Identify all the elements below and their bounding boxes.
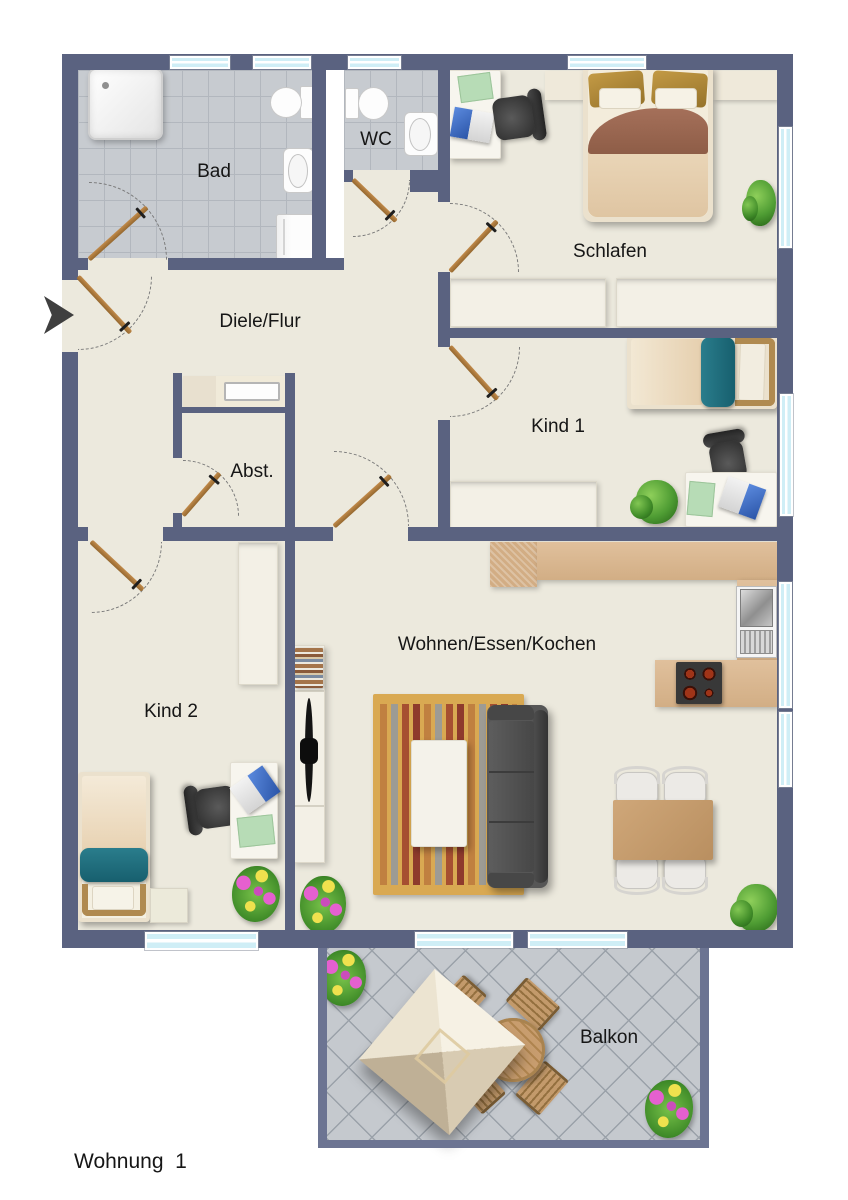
window-bad-2 [253,56,311,69]
balcony-door-right [528,932,627,948]
sofa-cushion-gap [489,821,534,823]
room-label-wc: WC [360,129,392,151]
bed-blanket-teal [80,848,148,882]
bed-pillow [92,886,134,910]
room-label-bad: Bad [197,161,231,183]
book-stack [295,648,323,688]
plan-title: Wohnung 1 [74,1150,187,1174]
kind1-bed [627,335,777,409]
shower [88,68,163,140]
kitchen-sink [736,586,777,658]
room-label-wohnen: Wohnen/Essen/Kochen [398,634,596,656]
window-kind2 [145,932,258,950]
toilet-bowl [270,87,302,118]
window-schlafen-top [568,56,646,69]
sofa-seat [489,721,534,872]
wall-wc-right [438,70,450,202]
wall-abst-left [173,373,182,458]
wc-toilet-bowl [358,87,389,120]
wc-sink-basin [409,118,431,151]
room-label-balkon: Balkon [580,1027,638,1049]
wall-balcony-right [700,948,709,1148]
kind2-side-table [150,888,188,923]
bed-mattress [631,339,703,405]
kind1-paper [687,481,716,517]
window-wc [348,56,401,69]
nightstand-right [713,71,777,100]
dining-table [613,800,713,860]
sink-basin [740,589,773,627]
wc-sink [404,112,438,156]
schlafen-wardrobe-right [616,278,777,327]
wall-abst-left-stub [173,513,182,527]
sofa-armrest [488,705,534,720]
wc-toilet [345,87,389,120]
wall-mid-c [408,527,793,541]
media-unit-divider [293,805,324,807]
coffee-table [411,740,467,847]
duct-shaft [326,70,344,258]
window-kind1 [780,394,793,516]
wall-balcony-left [318,948,327,1148]
room-label-schlafen: Schlafen [573,241,647,263]
wall-kind1-left [438,420,450,527]
wall-balcony-bottom [318,1140,709,1148]
dining-chair [664,855,706,889]
kind2-wardrobe [238,542,278,685]
schlafen-wardrobe-left [450,278,606,327]
wall-mid-b [163,527,333,541]
washing-machine-panel [283,219,285,255]
floor-plan-wohnung-1: Bad WC Schlafen Diele/Flur Abst. Kind 1 … [0,0,848,1200]
kind1-wardrobe [450,481,597,529]
room-label-abst: Abst. [230,461,273,483]
wall-abst-right [285,373,295,527]
kind2-bed [78,772,150,922]
wall-kind2-wohnen [285,541,295,932]
room-label-diele: Diele/Flur [219,311,300,333]
wall-schlafen-kind1 [444,328,793,338]
parasol-center [414,1028,470,1084]
bed-lower [588,150,708,217]
window-wohnen-2 [779,712,792,787]
window-wohnen-1 [779,582,792,708]
kitchen-counter-top [537,542,777,580]
sink-basin [288,154,308,188]
bed-headboard [735,338,775,406]
wc-toilet-tank [345,88,359,119]
wall-left-upper [62,54,78,280]
abst-shelf-tray [224,382,280,401]
media-unit-divider [293,690,324,692]
balcony-door-left [415,932,513,948]
kitchen-counter-block [490,542,537,587]
kitchen-stove [676,662,722,704]
sofa-armrest [488,873,534,888]
kind2-paper [237,814,276,848]
room-label-kind2: Kind 2 [144,701,198,723]
sofa [487,705,548,888]
schlafen-desk-paper [457,72,493,103]
sofa-backrest [533,710,548,883]
tv-stand [300,738,318,764]
bed-blanket-teal [701,337,735,407]
nightstand-left [545,71,583,100]
wall-bad-right [312,70,326,258]
window-bad-1 [170,56,230,69]
sofa-cushion-gap [489,771,534,773]
window-schlafen-right [779,127,792,248]
toilet [270,86,314,119]
room-label-kind1: Kind 1 [531,416,585,438]
pillow [599,88,641,109]
sink-drainer [740,630,773,654]
double-bed [583,66,713,222]
wall-bad-bottom-stub [78,258,88,270]
dining-chair [616,855,658,889]
bed-mattress [82,776,146,852]
wall-abst-top [173,407,295,413]
wall-bad-bottom [168,258,344,270]
wall-left-lower [62,352,78,948]
bathroom-sink [283,148,314,193]
pillow [655,88,697,109]
wall-wc-bottom-right [410,170,438,192]
washing-machine [276,214,314,260]
schlafen-office-chair [490,87,547,147]
wall-mid-a [62,527,88,541]
